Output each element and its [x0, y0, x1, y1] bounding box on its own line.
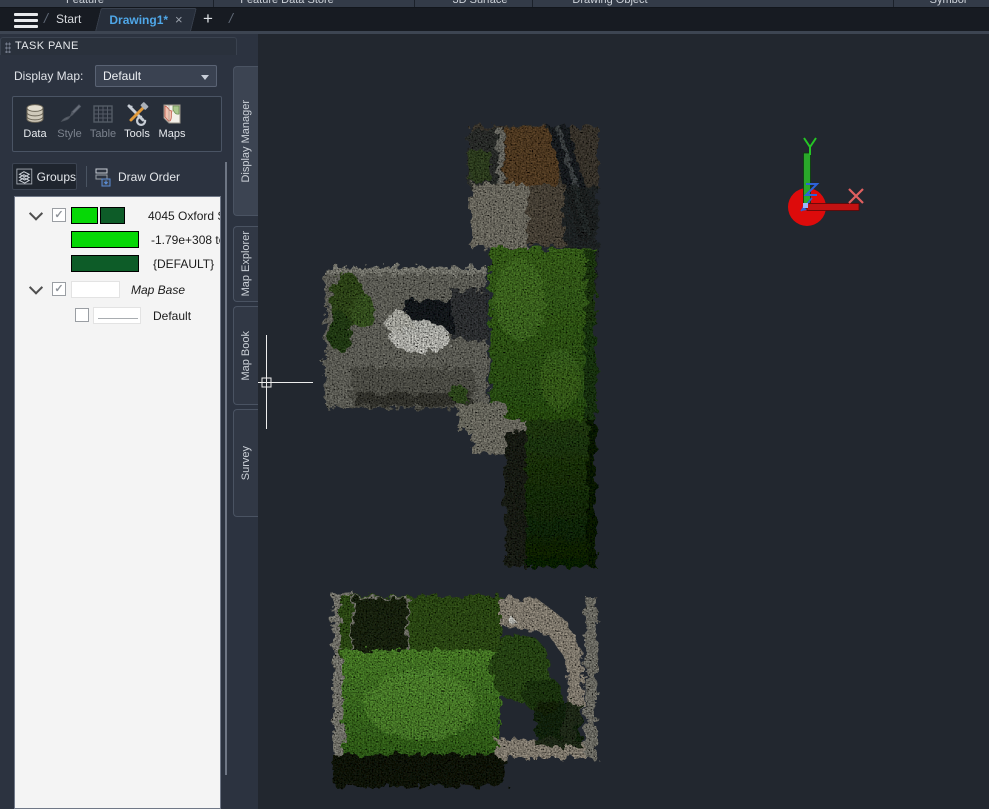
- style-button[interactable]: Style: [53, 101, 86, 151]
- data-button-label: Data: [23, 128, 46, 140]
- drag-grip-icon[interactable]: [5, 42, 11, 53]
- view-buttons-row: Groups Draw Order: [0, 162, 258, 192]
- side-tab-label: Map Book: [240, 331, 252, 381]
- side-tab-label: Survey: [240, 446, 252, 480]
- tree-row-style[interactable]: {DEFAULT}: [15, 253, 221, 275]
- map-icon: [159, 101, 185, 127]
- divider: [86, 166, 87, 187]
- tree-row-label: 4045 Oxford S: [148, 209, 221, 223]
- crosshair-cursor: [258, 335, 313, 429]
- point-cloud: [325, 126, 598, 786]
- tab-separator-slash: /: [229, 10, 233, 26]
- tab-separator-slash: /: [44, 10, 48, 26]
- color-swatch[interactable]: [71, 207, 98, 224]
- line-style-swatch[interactable]: [93, 307, 141, 324]
- side-tab-display-manager[interactable]: Display Manager: [233, 66, 258, 216]
- style-button-label: Style: [57, 128, 81, 140]
- display-map-row: Display Map: Default: [0, 62, 258, 92]
- table-grid-icon: [90, 101, 116, 127]
- checkbox-checked[interactable]: ✓: [52, 208, 66, 222]
- ribbon-panel-feature-data-store: Feature Data Store: [240, 0, 334, 6]
- chevron-down-icon: [201, 75, 209, 80]
- model-space-canvas[interactable]: Y: [258, 34, 989, 809]
- ribbon-separator: [414, 0, 415, 8]
- checkbox-checked[interactable]: ✓: [52, 282, 66, 296]
- tab-drawing1[interactable]: Drawing1* ×: [98, 8, 194, 31]
- canvas-graphics: Y: [258, 34, 989, 809]
- task-pane: TASK PANE Display Map: Default Data: [0, 34, 258, 809]
- tools-icon: [124, 101, 150, 127]
- side-tab-survey[interactable]: Survey: [233, 409, 258, 517]
- tools-button-label: Tools: [124, 128, 150, 140]
- groups-button[interactable]: Groups: [12, 163, 77, 190]
- checkbox-unchecked[interactable]: [75, 308, 89, 322]
- tab-drawing1-label: Drawing1*: [109, 13, 168, 27]
- tree-row-label: Map Base: [131, 283, 185, 297]
- side-tab-label: Map Explorer: [240, 231, 252, 296]
- ribbon-separator: [532, 0, 533, 8]
- tab-start[interactable]: Start: [56, 12, 81, 26]
- ribbon-panel-feature: Feature: [66, 0, 104, 6]
- tree-row-label: Default: [153, 309, 191, 323]
- ribbon-panel-3d-surface: 3D Surface: [452, 0, 507, 6]
- pane-resize-gutter[interactable]: [225, 162, 227, 775]
- color-swatch[interactable]: [71, 281, 120, 298]
- line-preview: [98, 318, 138, 319]
- ribbon-panel-drawing-object: Drawing Object: [572, 0, 647, 6]
- side-tab-label: Display Manager: [240, 100, 252, 183]
- color-swatch[interactable]: [71, 255, 139, 272]
- tools-button[interactable]: Tools: [120, 101, 154, 151]
- maps-button[interactable]: Maps: [154, 101, 190, 151]
- tree-row-label: {DEFAULT}: [153, 257, 214, 271]
- ribbon-separator: [213, 0, 214, 8]
- drawing-tab-bar: / Start Drawing1* × + /: [0, 8, 989, 34]
- side-tab-map-explorer[interactable]: Map Explorer: [233, 226, 258, 302]
- ribbon-panel-symbol: Symbol: [930, 0, 967, 6]
- data-button[interactable]: Data: [17, 101, 53, 151]
- color-swatch[interactable]: [71, 231, 139, 248]
- new-tab-button[interactable]: +: [203, 9, 213, 29]
- chevron-down-icon[interactable]: [31, 210, 41, 220]
- table-button-label: Table: [90, 128, 116, 140]
- chevron-down-icon[interactable]: [31, 284, 41, 294]
- table-button[interactable]: Table: [86, 101, 120, 151]
- display-map-value: Default: [103, 69, 141, 83]
- display-manager-tree: ✓ 4045 Oxford S -1.79e+308 to {DEFAULT} …: [14, 196, 221, 809]
- color-swatch[interactable]: [100, 207, 125, 224]
- tree-row-group[interactable]: ✓ Map Base: [15, 279, 221, 301]
- hamburger-menu-icon[interactable]: [14, 13, 38, 29]
- tree-row-label: -1.79e+308 to: [151, 233, 221, 247]
- draw-order-button[interactable]: Draw Order: [94, 163, 180, 190]
- tree-row-layer[interactable]: Default: [15, 305, 221, 327]
- draw-order-button-label: Draw Order: [118, 170, 180, 184]
- layers-icon: [16, 167, 33, 186]
- database-icon: [22, 101, 48, 127]
- task-pane-toolbar: Data Style Table: [12, 96, 222, 152]
- display-map-label: Display Map:: [14, 69, 83, 83]
- x-axis-glyph: [849, 189, 863, 203]
- tree-row-group[interactable]: ✓ 4045 Oxford S: [15, 205, 221, 227]
- ribbon-panel-strip: Feature Feature Data Store 3D Surface Dr…: [0, 0, 989, 8]
- display-map-dropdown[interactable]: Default: [95, 65, 217, 87]
- ribbon-separator: [893, 0, 894, 8]
- draw-order-icon: [94, 167, 112, 187]
- task-pane-title: TASK PANE: [15, 40, 79, 52]
- task-pane-titlebar: TASK PANE: [0, 37, 237, 55]
- groups-button-label: Groups: [37, 170, 76, 184]
- side-tab-map-book[interactable]: Map Book: [233, 306, 258, 405]
- maps-button-label: Maps: [159, 128, 186, 140]
- paintbrush-icon: [57, 101, 83, 127]
- tree-row-style[interactable]: -1.79e+308 to: [15, 229, 221, 251]
- close-icon[interactable]: ×: [175, 12, 183, 27]
